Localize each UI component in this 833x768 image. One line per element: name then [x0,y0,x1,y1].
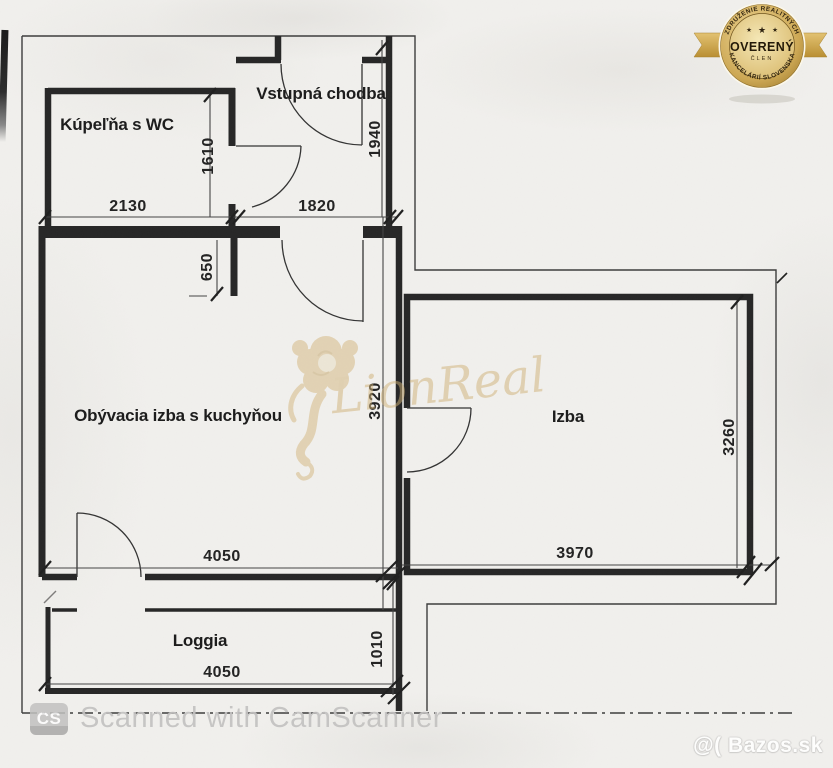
camscanner-logo-icon: CS [30,703,68,735]
camscanner-watermark-text: Scanned with CamScanner [80,702,443,735]
scanned-floorplan-page: 2130 1820 4050 3970 4050 1610 1940 650 3… [0,0,833,768]
camscanner-footer: CS Scanned with CamScanner [30,702,443,735]
star-icon: ★ [758,26,766,36]
badge-shadow [729,95,795,104]
verified-badge: ZDRUŽENIE REALITNÝCH KANCELÁRIÍ SLOVENSK… [688,0,833,108]
floorplan-drawing: 2130 1820 4050 3970 4050 1610 1940 650 3… [0,0,833,768]
badge-subtitle: ČLEN [751,55,774,62]
star-icon: ★ [772,26,778,34]
badge-title: OVERENÝ [730,39,794,54]
bazos-watermark: @( Bazos.sk [693,734,823,758]
star-icon: ★ [746,26,752,34]
scan-noise-overlay [0,0,833,768]
